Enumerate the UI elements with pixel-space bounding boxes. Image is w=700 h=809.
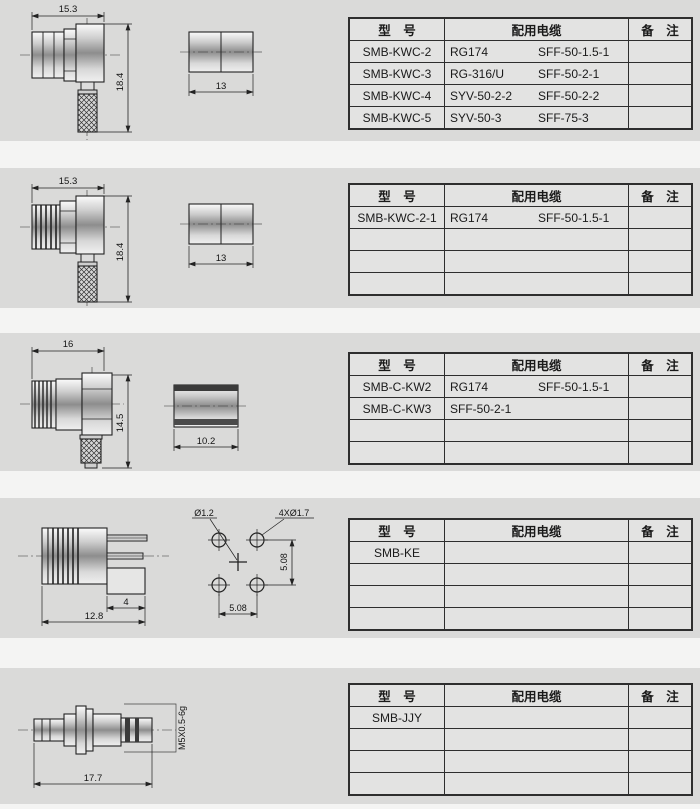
table-header-row: 型 号 配用电缆 备 注 (350, 19, 691, 40)
table-row: SMB-KWC-5 SYV-50-3SFF-75-3 (350, 106, 691, 128)
dim-label-height: 14.5 (115, 414, 126, 433)
section-3: 16 14.5 10.2 型 号 配用电缆 备 注 SMB-C-KW2 RG17… (0, 333, 700, 471)
section-1: 15.3 18.4 13 型 号 配用电缆 备 注 SMB-KWC-2 RG17… (0, 0, 700, 141)
model-cell (350, 773, 444, 794)
spec-table-2: 型 号 配用电缆 备 注 SMB-KWC-2-1 RG174SFF-50-1.5… (348, 183, 693, 296)
remark-cell (628, 773, 691, 794)
drawing-smb-kwc-2-1: 15.3 18.4 13 (4, 168, 344, 313)
spec-table-5: 型 号 配用电缆 备 注 SMB-JJY (348, 683, 693, 796)
table-row (350, 272, 691, 294)
col-header-model: 型 号 (350, 520, 444, 541)
drawing-smb-ke: 4 12.8 Ø1.2 4XØ1.7 (4, 498, 344, 643)
table-row: SMB-KE (350, 541, 691, 563)
col-header-remark: 备 注 (628, 354, 691, 375)
dim-label-width: 17.7 (84, 773, 103, 784)
table-row: SMB-KWC-3 RG-316/USFF-50-2-1 (350, 62, 691, 84)
col-header-remark: 备 注 (628, 185, 691, 206)
model-cell: SMB-KE (350, 542, 444, 563)
remark-cell (628, 564, 691, 585)
remark-cell (628, 376, 691, 397)
cable-cell (444, 608, 628, 629)
table-header-row: 型 号 配用电缆 备 注 (350, 520, 691, 541)
cable-cell: RG174SFF-50-1.5-1 (444, 41, 628, 62)
dim-label-pitch-y: 5.08 (279, 553, 289, 571)
dim-label-pitch-x: 5.08 (229, 603, 247, 613)
col-header-cable: 配用电缆 (444, 685, 628, 706)
drawing-smb-c-kw: 16 14.5 10.2 (4, 333, 344, 476)
table-row (350, 228, 691, 250)
dim-label-width: 16 (63, 339, 74, 350)
model-cell: SMB-KWC-2 (350, 41, 444, 62)
dim-label-thread: M5X0.5-6g (177, 706, 187, 750)
table-row (350, 728, 691, 750)
model-cell: SMB-C-KW3 (350, 398, 444, 419)
model-cell (350, 586, 444, 607)
cable-cell (444, 420, 628, 441)
col-header-model: 型 号 (350, 354, 444, 375)
table-row (350, 441, 691, 463)
remark-cell (628, 420, 691, 441)
remark-cell (628, 586, 691, 607)
dim-label-height: 18.4 (115, 73, 126, 92)
model-cell (350, 229, 444, 250)
remark-cell (628, 207, 691, 228)
dim-label-part: 13 (216, 253, 227, 264)
col-header-cable: 配用电缆 (444, 185, 628, 206)
col-header-model: 型 号 (350, 685, 444, 706)
remark-cell (628, 608, 691, 629)
dim-label-height: 18.4 (115, 243, 126, 262)
model-cell (350, 608, 444, 629)
spec-table-3: 型 号 配用电缆 备 注 SMB-C-KW2 RG174SFF-50-1.5-1… (348, 352, 693, 465)
model-cell (350, 751, 444, 772)
cable-cell: SYV-50-2-2SFF-50-2-2 (444, 85, 628, 106)
remark-cell (628, 85, 691, 106)
spec-table-4: 型 号 配用电缆 备 注 SMB-KE (348, 518, 693, 631)
cable-cell (444, 564, 628, 585)
cable-cell (444, 273, 628, 294)
table-row (350, 419, 691, 441)
remark-cell (628, 229, 691, 250)
cable-cell (444, 442, 628, 463)
remark-cell (628, 273, 691, 294)
col-header-cable: 配用电缆 (444, 19, 628, 40)
table-header-row: 型 号 配用电缆 备 注 (350, 685, 691, 706)
model-cell: SMB-KWC-2-1 (350, 207, 444, 228)
model-cell (350, 273, 444, 294)
cable-cell (444, 229, 628, 250)
model-cell (350, 251, 444, 272)
model-cell: SMB-KWC-3 (350, 63, 444, 84)
col-header-model: 型 号 (350, 185, 444, 206)
dim-label-hole: Ø1.2 (194, 508, 214, 518)
col-header-cable: 配用电缆 (444, 354, 628, 375)
dim-label-width: 15.3 (59, 4, 78, 15)
table-row (350, 772, 691, 794)
remark-cell (628, 442, 691, 463)
model-cell (350, 420, 444, 441)
dim-label-width: 12.8 (85, 611, 104, 622)
cable-cell: RG-316/USFF-50-2-1 (444, 63, 628, 84)
table-header-row: 型 号 配用电缆 备 注 (350, 354, 691, 375)
model-cell (350, 442, 444, 463)
remark-cell (628, 707, 691, 728)
cable-cell: RG174SFF-50-1.5-1 (444, 376, 628, 397)
remark-cell (628, 41, 691, 62)
remark-cell (628, 398, 691, 419)
cable-cell (444, 586, 628, 607)
table-row: SMB-C-KW3 SFF-50-2-1 (350, 397, 691, 419)
model-cell: SMB-C-KW2 (350, 376, 444, 397)
dim-label-pads: 4XØ1.7 (279, 508, 310, 518)
model-cell (350, 729, 444, 750)
cable-cell (444, 773, 628, 794)
col-header-remark: 备 注 (628, 520, 691, 541)
table-row (350, 250, 691, 272)
cable-cell (444, 542, 628, 563)
cable-cell: RG174SFF-50-1.5-1 (444, 207, 628, 228)
table-row (350, 750, 691, 772)
remark-cell (628, 107, 691, 128)
section-5: M5X0.5-6g 17.7 型 号 配用电缆 备 注 SMB-JJY (0, 668, 700, 804)
cable-cell: SYV-50-3SFF-75-3 (444, 107, 628, 128)
table-row: SMB-KWC-2-1 RG174SFF-50-1.5-1 (350, 206, 691, 228)
remark-cell (628, 63, 691, 84)
dim-label-pin: 4 (123, 597, 128, 608)
section-4: 4 12.8 Ø1.2 4XØ1.7 (0, 498, 700, 638)
table-row: SMB-C-KW2 RG174SFF-50-1.5-1 (350, 375, 691, 397)
col-header-model: 型 号 (350, 19, 444, 40)
dim-label-part: 13 (216, 81, 227, 92)
cable-cell (444, 707, 628, 728)
table-row: SMB-KWC-2 RG174SFF-50-1.5-1 (350, 40, 691, 62)
remark-cell (628, 751, 691, 772)
cable-cell (444, 729, 628, 750)
table-row (350, 607, 691, 629)
cable-cell (444, 251, 628, 272)
model-cell: SMB-JJY (350, 707, 444, 728)
model-cell (350, 564, 444, 585)
col-header-remark: 备 注 (628, 19, 691, 40)
cable-cell (444, 751, 628, 772)
col-header-remark: 备 注 (628, 685, 691, 706)
table-row (350, 563, 691, 585)
drawing-smb-kwc: 15.3 18.4 13 (4, 0, 344, 146)
dim-label-width: 15.3 (59, 176, 78, 187)
table-row: SMB-JJY (350, 706, 691, 728)
table-row: SMB-KWC-4 SYV-50-2-2SFF-50-2-2 (350, 84, 691, 106)
spec-table-1: 型 号 配用电缆 备 注 SMB-KWC-2 RG174SFF-50-1.5-1… (348, 17, 693, 130)
drawing-smb-jjy: M5X0.5-6g 17.7 (4, 668, 344, 809)
col-header-cable: 配用电缆 (444, 520, 628, 541)
remark-cell (628, 251, 691, 272)
model-cell: SMB-KWC-5 (350, 107, 444, 128)
table-row (350, 585, 691, 607)
remark-cell (628, 542, 691, 563)
model-cell: SMB-KWC-4 (350, 85, 444, 106)
cable-cell: SFF-50-2-1 (444, 398, 628, 419)
table-header-row: 型 号 配用电缆 备 注 (350, 185, 691, 206)
section-2: 15.3 18.4 13 型 号 配用电缆 备 注 SMB-KWC-2-1 RG… (0, 168, 700, 308)
remark-cell (628, 729, 691, 750)
dim-label-part: 10.2 (197, 436, 216, 447)
